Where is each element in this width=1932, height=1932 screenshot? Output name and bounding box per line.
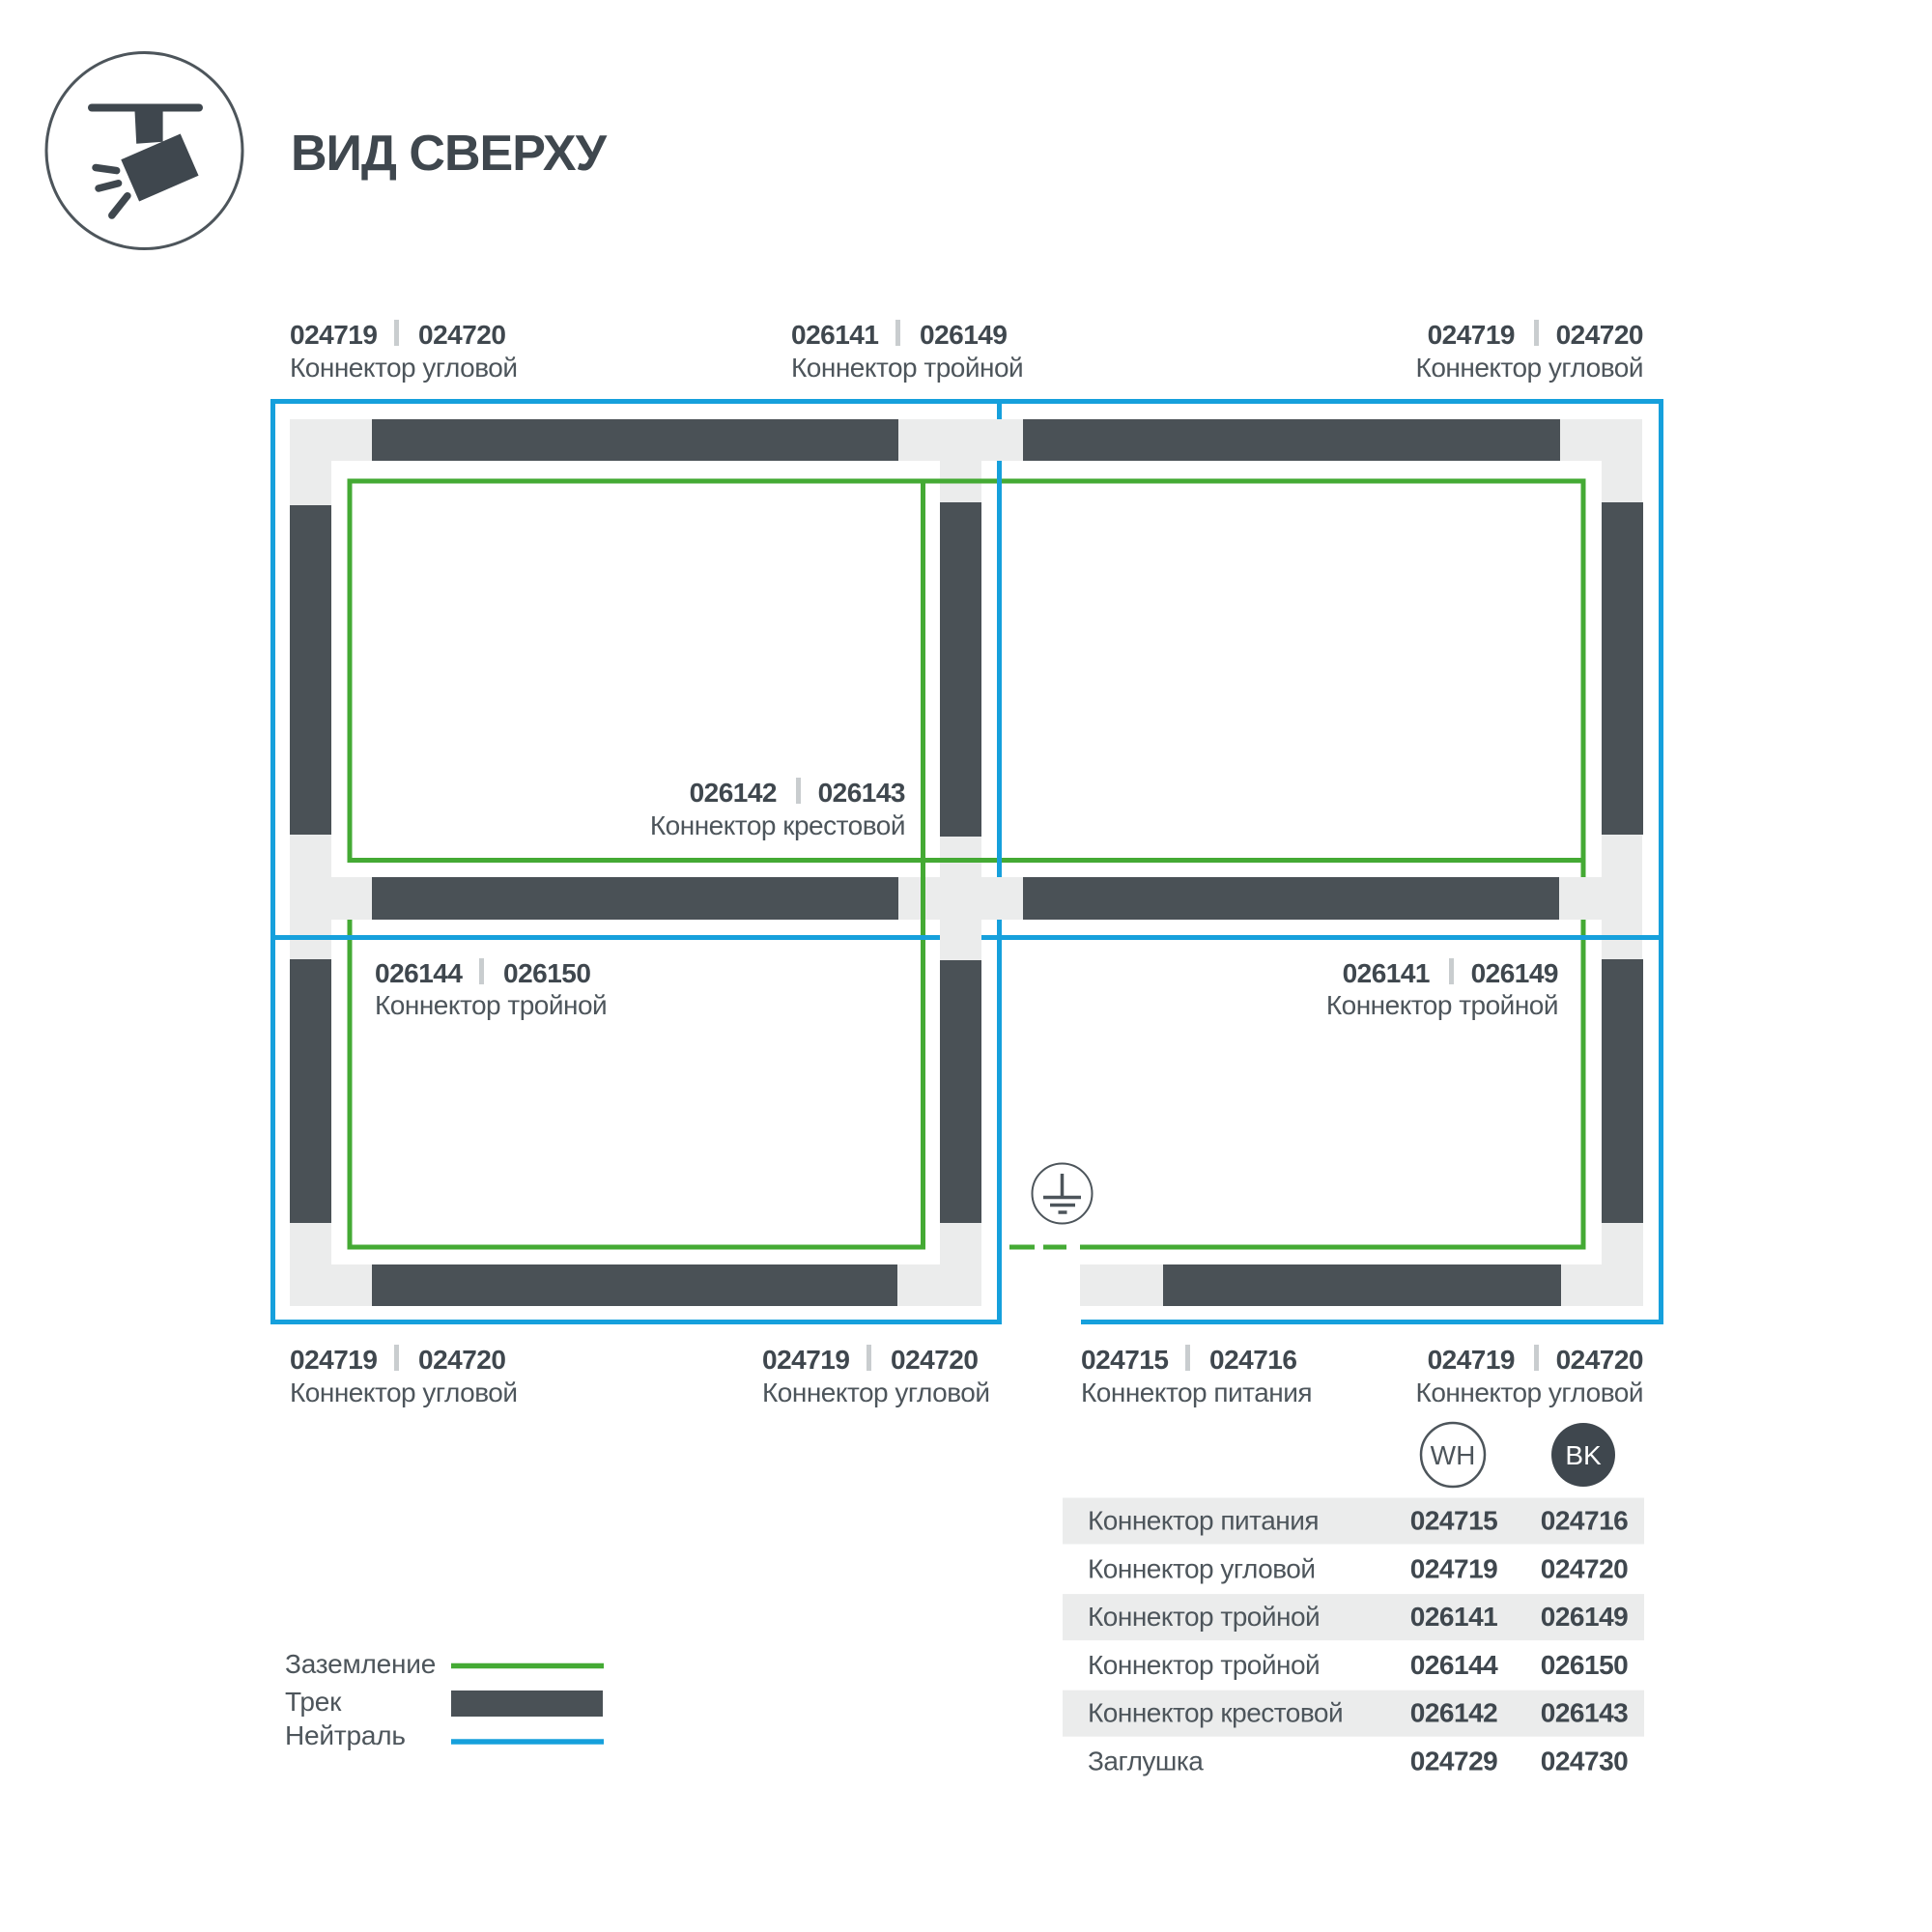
svg-text:024730: 024730 <box>1541 1747 1628 1776</box>
svg-text:024716: 024716 <box>1209 1345 1296 1375</box>
svg-text:026141: 026141 <box>1343 958 1430 988</box>
svg-text:026143: 026143 <box>1541 1698 1628 1728</box>
svg-text:024729: 024729 <box>1410 1747 1497 1776</box>
svg-text:Коннектор тройной: Коннектор тройной <box>1088 1650 1320 1680</box>
svg-text:Заглушка: Заглушка <box>1088 1747 1204 1776</box>
svg-text:024719: 024719 <box>1428 320 1515 350</box>
svg-text:024719: 024719 <box>290 320 377 350</box>
svg-text:026149: 026149 <box>920 320 1007 350</box>
svg-text:024720: 024720 <box>891 1345 978 1375</box>
svg-text:026150: 026150 <box>1541 1650 1628 1680</box>
svg-text:026144: 026144 <box>1410 1650 1498 1680</box>
svg-text:026142: 026142 <box>690 778 777 808</box>
svg-text:026141: 026141 <box>1410 1602 1497 1632</box>
svg-text:Коннектор питания: Коннектор питания <box>1081 1378 1312 1407</box>
svg-text:024720: 024720 <box>418 1345 505 1375</box>
svg-text:024715: 024715 <box>1410 1506 1497 1536</box>
svg-text:024719: 024719 <box>1410 1553 1497 1583</box>
svg-text:024720: 024720 <box>1541 1553 1628 1583</box>
svg-text:Коннектор угловой: Коннектор угловой <box>1416 1378 1643 1407</box>
svg-text:024719: 024719 <box>1428 1345 1515 1375</box>
svg-text:Коннектор тройной: Коннектор тройной <box>791 353 1023 383</box>
svg-text:Коннектор крестовой: Коннектор крестовой <box>650 810 905 840</box>
svg-text:Коннектор тройной: Коннектор тройной <box>1088 1602 1320 1632</box>
svg-text:026141: 026141 <box>791 320 878 350</box>
svg-text:Нейтраль: Нейтраль <box>285 1720 406 1750</box>
svg-text:Коннектор угловой: Коннектор угловой <box>762 1378 989 1407</box>
svg-text:Коннектор угловой: Коннектор угловой <box>290 1378 517 1407</box>
svg-text:Коннектор тройной: Коннектор тройной <box>375 990 607 1020</box>
svg-text:026149: 026149 <box>1541 1602 1628 1632</box>
svg-text:024720: 024720 <box>418 320 505 350</box>
svg-text:024720: 024720 <box>1556 320 1643 350</box>
svg-text:ВИД СВЕРХУ: ВИД СВЕРХУ <box>291 126 608 182</box>
svg-text:024719: 024719 <box>290 1345 377 1375</box>
svg-text:Коннектор питания: Коннектор питания <box>1088 1506 1319 1536</box>
svg-text:024720: 024720 <box>1556 1345 1643 1375</box>
svg-text:Трек: Трек <box>285 1687 342 1717</box>
svg-text:026144: 026144 <box>375 958 463 988</box>
svg-text:Заземление: Заземление <box>285 1649 436 1679</box>
svg-text:026150: 026150 <box>503 958 590 988</box>
svg-text:Коннектор угловой: Коннектор угловой <box>1088 1553 1315 1583</box>
svg-text:Коннектор угловой: Коннектор угловой <box>1416 353 1643 383</box>
svg-text:026143: 026143 <box>818 778 905 808</box>
svg-text:024716: 024716 <box>1541 1506 1628 1536</box>
svg-text:WH: WH <box>1431 1440 1476 1470</box>
svg-text:026149: 026149 <box>1471 958 1558 988</box>
svg-text:024719: 024719 <box>762 1345 849 1375</box>
svg-text:BK: BK <box>1565 1440 1602 1470</box>
svg-text:026142: 026142 <box>1410 1698 1497 1728</box>
svg-text:Коннектор крестовой: Коннектор крестовой <box>1088 1698 1343 1728</box>
svg-text:Коннектор тройной: Коннектор тройной <box>1326 990 1558 1020</box>
svg-text:Коннектор угловой: Коннектор угловой <box>290 353 517 383</box>
svg-text:024715: 024715 <box>1081 1345 1168 1375</box>
